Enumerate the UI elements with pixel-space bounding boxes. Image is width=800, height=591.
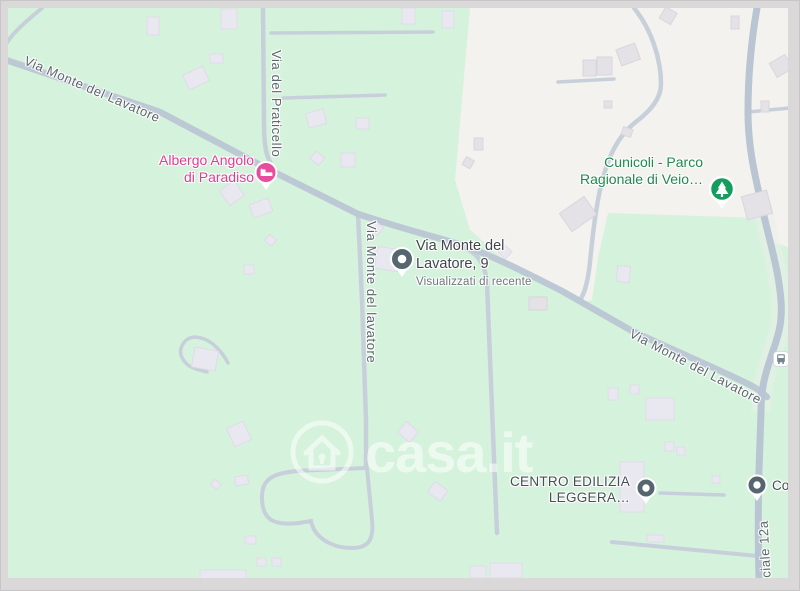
bed-icon (253, 160, 279, 191)
poi-label-via-monte-del-lavatore-9[interactable]: Via Monte del Lavatore, 9 Visualizzati d… (416, 237, 532, 291)
map-canvas[interactable]: Via Monte del Lavatore Via del Praticell… (8, 8, 788, 578)
bus-stop-icon (773, 351, 788, 367)
cour-pin[interactable] (745, 474, 769, 507)
map-base-layer (8, 8, 788, 578)
poi-label-cour[interactable]: Cour (772, 478, 788, 493)
map-frame: Via Monte del Lavatore Via del Praticell… (0, 0, 800, 591)
dot-pin-icon (745, 474, 769, 502)
recent-dot-pin-icon (388, 246, 416, 278)
centro-pin[interactable] (634, 477, 658, 510)
poi-label-cunicoli[interactable]: Cunicoli - Parco Ragionale di Veio… (545, 154, 703, 188)
bus-stop[interactable] (773, 351, 788, 372)
hotel-pin[interactable] (253, 160, 279, 196)
tree-icon (707, 175, 737, 210)
poi-label-centro-edilizia[interactable]: CENTRO EDILIZIA LEGGERA… (506, 474, 630, 506)
street-label-via-del-praticello: Via del Praticello (269, 50, 284, 157)
street-label-via-monte-del-lavatore-vertical: Via Monte del lavatore (364, 221, 379, 363)
park-pin[interactable] (707, 175, 737, 215)
dot-pin-icon (634, 477, 658, 505)
recently-viewed-note: Visualizzati di recente (416, 273, 532, 291)
poi-label-albergo[interactable]: Albergo Angolo di Paradiso (122, 152, 254, 186)
recent-pin[interactable] (388, 246, 416, 283)
